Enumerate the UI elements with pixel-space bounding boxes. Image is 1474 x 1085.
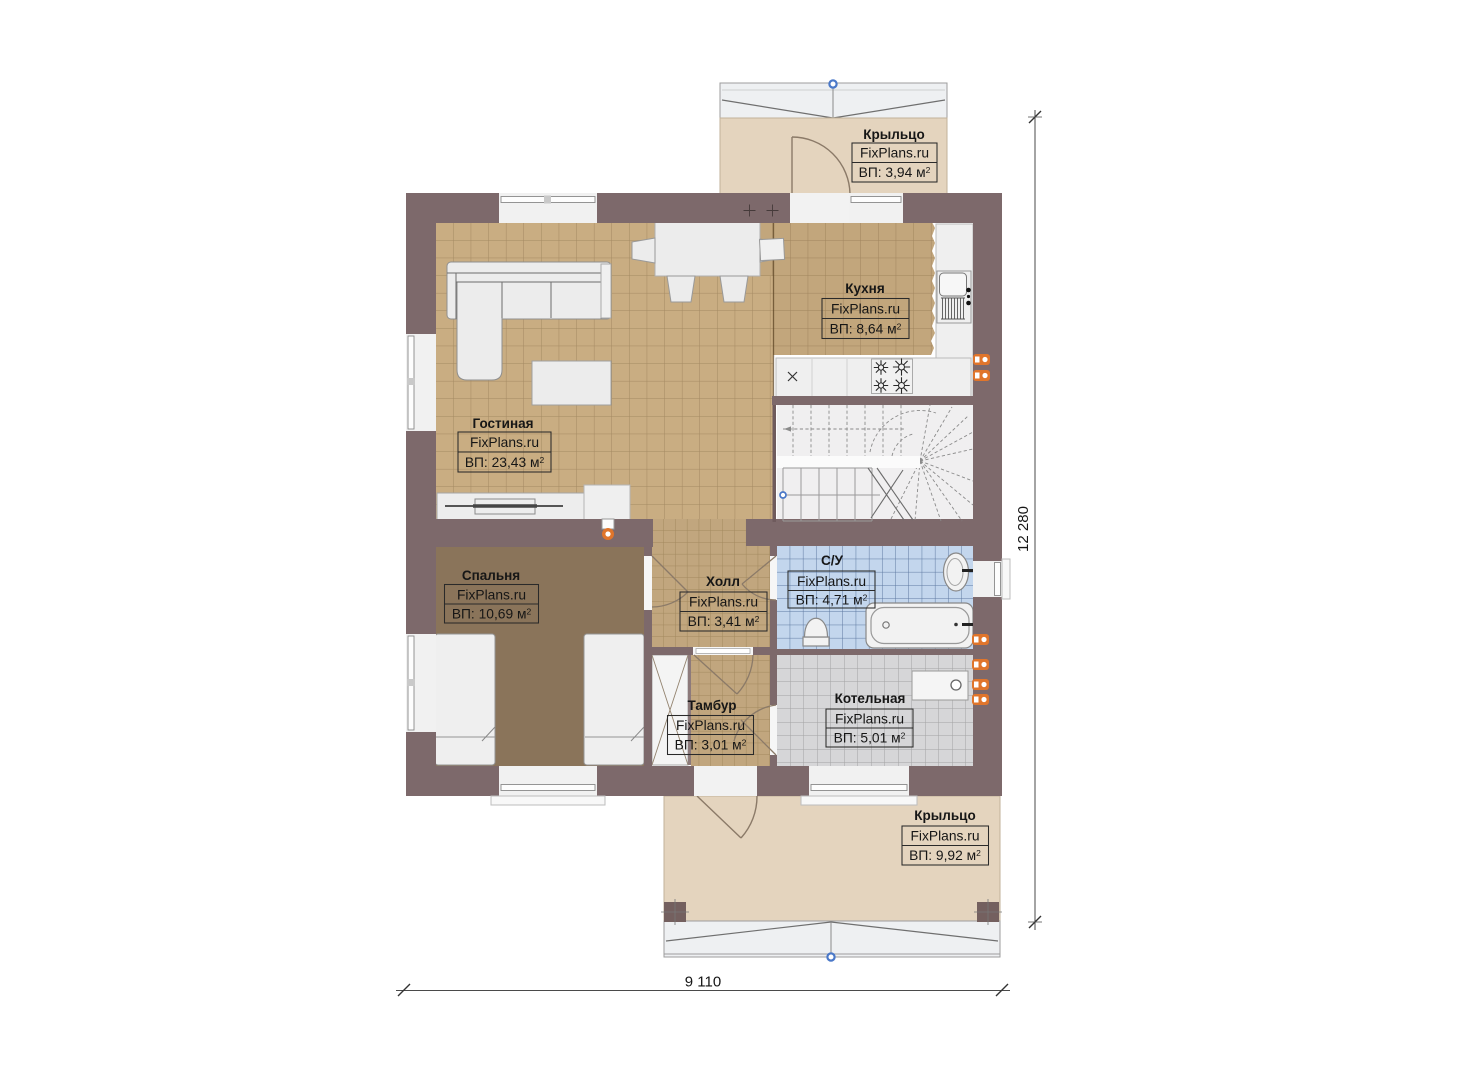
svg-text:ВП: 5,01 м2: ВП: 5,01 м2: [834, 731, 906, 746]
svg-text:FixPlans.ru: FixPlans.ru: [470, 435, 539, 450]
svg-text:ВП: 4,71 м2: ВП: 4,71 м2: [796, 593, 868, 608]
svg-text:ВП: 3,41 м2: ВП: 3,41 м2: [688, 614, 760, 629]
svg-text:FixPlans.ru: FixPlans.ru: [831, 302, 900, 317]
svg-text:Холл: Холл: [706, 574, 740, 589]
svg-text:ВП: 8,64 м2: ВП: 8,64 м2: [830, 322, 902, 337]
svg-text:Кухня: Кухня: [845, 281, 884, 296]
svg-text:Спальня: Спальня: [462, 568, 520, 583]
svg-text:ВП: 9,92 м2: ВП: 9,92 м2: [909, 848, 981, 863]
svg-text:ВП: 23,43 м2: ВП: 23,43 м2: [465, 455, 545, 470]
svg-text:12 280: 12 280: [1015, 506, 1032, 552]
svg-text:Крыльцо: Крыльцо: [914, 808, 975, 823]
svg-text:Тамбур: Тамбур: [688, 698, 737, 713]
svg-text:ВП: 3,94 м2: ВП: 3,94 м2: [859, 165, 931, 180]
svg-text:FixPlans.ru: FixPlans.ru: [835, 712, 904, 727]
svg-text:FixPlans.ru: FixPlans.ru: [797, 574, 866, 589]
svg-text:FixPlans.ru: FixPlans.ru: [457, 588, 526, 603]
svg-text:С/У: С/У: [821, 553, 844, 568]
svg-text:FixPlans.ru: FixPlans.ru: [689, 595, 758, 610]
svg-text:Котельная: Котельная: [835, 691, 906, 706]
svg-text:9 110: 9 110: [685, 974, 721, 991]
svg-text:ВП: 3,01 м2: ВП: 3,01 м2: [675, 738, 747, 753]
svg-text:ВП: 10,69 м2: ВП: 10,69 м2: [452, 607, 532, 622]
svg-text:Крыльцо: Крыльцо: [863, 127, 924, 142]
svg-text:FixPlans.ru: FixPlans.ru: [860, 146, 929, 161]
svg-text:Гостиная: Гостиная: [472, 416, 533, 431]
svg-text:FixPlans.ru: FixPlans.ru: [910, 829, 979, 844]
svg-text:FixPlans.ru: FixPlans.ru: [676, 718, 745, 733]
